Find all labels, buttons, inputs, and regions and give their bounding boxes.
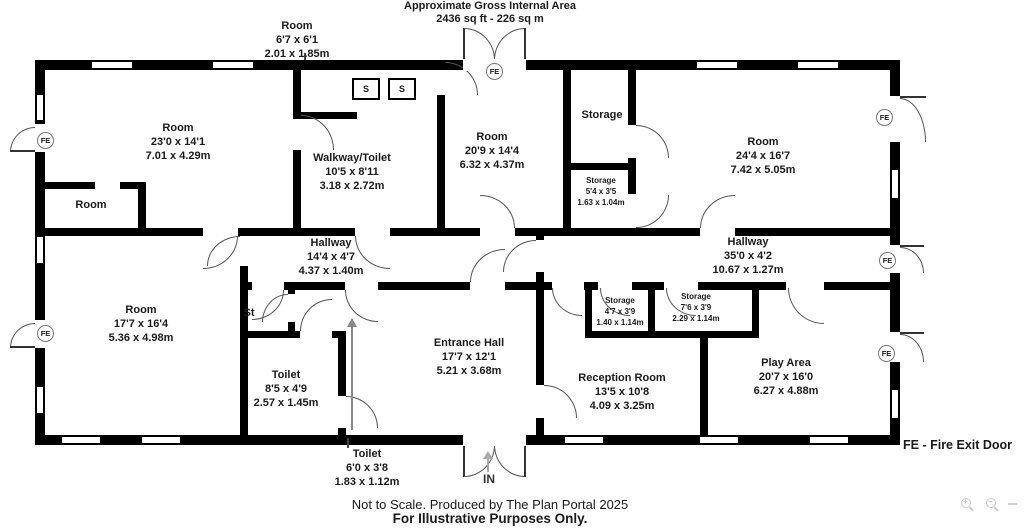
header-title: Approximate Gross Internal Area bbox=[404, 0, 576, 14]
door-swing-arc bbox=[10, 127, 35, 152]
door-leaf bbox=[900, 332, 924, 334]
fire-exit-marker: FE bbox=[876, 109, 893, 126]
room-name: Storage bbox=[672, 292, 719, 303]
window bbox=[798, 60, 838, 70]
room-dims-metric: 4.09 x 3.25m bbox=[578, 400, 665, 414]
room-name: Room bbox=[460, 131, 525, 145]
fe-label: FE bbox=[880, 113, 890, 122]
room-dims-imperial: 20'9 x 14'4 bbox=[460, 145, 525, 159]
sink-label: S bbox=[399, 84, 405, 94]
wall-segment bbox=[544, 282, 552, 290]
room-label-storage-54: Storage 5'4 x 3'5 1.63 x 1.04m bbox=[577, 176, 624, 208]
room-dims-imperial: 20'7 x 16'0 bbox=[754, 371, 819, 385]
door-leaf bbox=[10, 150, 35, 152]
room-dims-metric: 7.42 x 5.05m bbox=[731, 164, 796, 178]
wall-segment bbox=[338, 331, 346, 396]
room-name: Room bbox=[265, 20, 330, 34]
wall-segment bbox=[563, 60, 571, 228]
door-swing-arc bbox=[900, 334, 924, 362]
room-name: Toilet bbox=[335, 448, 400, 462]
room-label-entrance-hall: Entrance Hall 17'7 x 12'1 5.21 x 3.68m bbox=[434, 337, 504, 378]
fe-label: FE bbox=[41, 329, 51, 338]
wall-segment bbox=[585, 331, 759, 338]
room-label-toilet-60: Toilet 6'0 x 3'8 1.83 x 1.12m bbox=[335, 448, 400, 489]
fire-exit-marker: FE bbox=[37, 325, 54, 342]
wall-segment bbox=[536, 418, 544, 435]
fire-exit-marker: FE bbox=[878, 345, 895, 362]
room-name: Room bbox=[146, 122, 211, 136]
room-label-room-20: Room 20'9 x 14'4 6.32 x 4.37m bbox=[460, 131, 525, 172]
room-label-toilet-85: Toilet 8'5 x 4'9 2.57 x 1.45m bbox=[254, 369, 319, 410]
fire-exit-legend: FE - Fire Exit Door bbox=[903, 438, 1012, 452]
room-dims-metric: 6.32 x 4.37m bbox=[460, 159, 525, 173]
zoom-in-icon[interactable]: + bbox=[961, 498, 971, 508]
room-dims-imperial: 13'5 x 10'8 bbox=[578, 386, 665, 400]
room-name: Room bbox=[109, 304, 174, 318]
room-dims-imperial: 14'4 x 4'7 bbox=[299, 251, 364, 265]
window bbox=[62, 435, 100, 445]
room-dims-metric: 7.01 x 4.29m bbox=[146, 150, 211, 164]
fe-label: FE bbox=[883, 256, 893, 265]
wall-segment bbox=[240, 266, 248, 435]
window bbox=[35, 387, 45, 413]
door-swing-arc bbox=[900, 98, 926, 142]
window bbox=[35, 95, 45, 120]
door-leaf bbox=[524, 445, 526, 477]
fire-exit-marker: FE bbox=[879, 252, 896, 269]
room-dims-imperial: 7'6 x 3'9 bbox=[672, 303, 719, 314]
room-label-hallway-35: Hallway 35'0 x 4'2 10.67 x 1.27m bbox=[713, 236, 784, 277]
window bbox=[565, 435, 603, 445]
room-dims-metric: 5.21 x 3.68m bbox=[434, 365, 504, 379]
room-label-st: St bbox=[244, 307, 255, 321]
window bbox=[697, 60, 737, 70]
door-leaf bbox=[10, 346, 35, 348]
door-swing-arc bbox=[480, 195, 515, 228]
floorplan-page: { "header": { "line1": "Approximate Gros… bbox=[0, 0, 1024, 531]
window bbox=[213, 60, 253, 70]
room-label-room-17: Room 17'7 x 16'4 5.36 x 4.98m bbox=[109, 304, 174, 345]
room-name: Storage bbox=[582, 109, 623, 123]
room-dims-imperial: 6'0 x 3'8 bbox=[335, 462, 400, 476]
room-dims-imperial: 23'0 x 14'1 bbox=[146, 136, 211, 150]
room-name: Room bbox=[731, 136, 796, 150]
sink-box: S bbox=[352, 78, 380, 100]
room-dims-metric: 5.36 x 4.98m bbox=[109, 332, 174, 346]
wall-segment bbox=[293, 150, 301, 228]
minus-glyph: − bbox=[987, 498, 994, 505]
wall-segment bbox=[735, 228, 890, 236]
wall-segment bbox=[698, 282, 786, 290]
wall-segment bbox=[824, 282, 890, 290]
room-dims-metric: 10.67 x 1.27m bbox=[713, 264, 784, 278]
wall-segment bbox=[628, 60, 636, 125]
stairs-arrow-head bbox=[347, 318, 357, 327]
room-name: Toilet bbox=[254, 369, 319, 383]
door-swing-arc bbox=[301, 115, 334, 150]
room-dims-metric: 2.01 x 1.85m bbox=[265, 48, 330, 62]
room-label-room-24: Room 24'4 x 16'7 7.42 x 5.05m bbox=[731, 136, 796, 177]
door-swing-arc bbox=[636, 195, 669, 228]
room-label-storage-76: Storage 7'6 x 3'9 2.29 x 1.14m bbox=[672, 292, 719, 324]
room-label-hallway-14: Hallway 14'4 x 4'7 4.37 x 1.40m bbox=[299, 237, 364, 278]
room-dims-imperial: 17'7 x 16'4 bbox=[109, 318, 174, 332]
wall-segment bbox=[700, 331, 708, 435]
door-swing-arc bbox=[636, 125, 669, 158]
room-dims-imperial: 17'7 x 12'1 bbox=[434, 351, 504, 365]
door-swing-arc bbox=[10, 323, 35, 348]
fire-exit-marker: FE bbox=[486, 63, 503, 80]
room-dims-metric: 6.27 x 4.88m bbox=[754, 385, 819, 399]
room-label-storage-top: Storage bbox=[582, 109, 623, 123]
room-label-reception: Reception Room 13'5 x 10'8 4.09 x 3.25m bbox=[578, 372, 665, 413]
entrance-arrow-line bbox=[487, 459, 489, 472]
wall-segment bbox=[390, 228, 480, 236]
wall-segment bbox=[238, 228, 355, 236]
footer-illustrative-note: For Illustrative Purposes Only. bbox=[393, 511, 588, 526]
room-label-storage-47: Storage 4'7 x 3'9 1.40 x 1.14m bbox=[596, 296, 643, 328]
room-dims-imperial: 6'7 x 6'1 bbox=[265, 34, 330, 48]
door-leaf bbox=[900, 96, 926, 98]
room-dims-metric: 2.29 x 1.14m bbox=[672, 314, 719, 325]
fire-exit-marker: FE bbox=[37, 132, 54, 149]
label-leader-line bbox=[347, 438, 349, 448]
room-label-room-23: Room 23'0 x 14'1 7.01 x 4.29m bbox=[146, 122, 211, 163]
room-dims-imperial: 35'0 x 4'2 bbox=[713, 250, 784, 264]
fe-label: FE bbox=[882, 349, 892, 358]
door-swing-arc bbox=[700, 195, 735, 228]
wall-segment bbox=[628, 158, 636, 194]
door-swing-arc bbox=[900, 247, 924, 273]
wall-segment bbox=[288, 282, 295, 294]
door-leaf bbox=[900, 245, 924, 247]
window bbox=[142, 435, 180, 445]
sink-label: S bbox=[363, 84, 369, 94]
room-name: Hallway bbox=[713, 236, 784, 250]
fe-label: FE bbox=[41, 136, 51, 145]
room-dims-metric: 1.63 x 1.04m bbox=[577, 198, 624, 209]
wall-segment bbox=[35, 182, 95, 189]
room-dims-metric: 1.83 x 1.12m bbox=[335, 476, 400, 490]
window bbox=[35, 237, 45, 263]
room-name: Hallway bbox=[299, 237, 364, 251]
wall-segment bbox=[138, 182, 146, 228]
door-swing-arc bbox=[503, 240, 536, 272]
window bbox=[890, 390, 900, 418]
room-name: St bbox=[244, 307, 255, 321]
window bbox=[92, 60, 132, 70]
room-name: Storage bbox=[577, 176, 624, 187]
door-swing-arc bbox=[494, 28, 525, 60]
entrance-in-label: IN bbox=[483, 472, 495, 487]
door-opening bbox=[463, 434, 526, 446]
door-leaf bbox=[524, 28, 526, 60]
footer-disclaimer: Not to Scale. Produced by The Plan Porta… bbox=[352, 497, 629, 512]
door-swing-arc bbox=[788, 288, 824, 324]
wall-segment bbox=[338, 428, 346, 435]
room-label-play-area: Play Area 20'7 x 16'0 6.27 x 4.88m bbox=[754, 357, 819, 398]
entrance-arrow-head bbox=[483, 451, 493, 459]
wall-segment bbox=[437, 95, 445, 228]
stairs-arrow-line bbox=[351, 327, 353, 430]
room-label-top-room: Room 6'7 x 6'1 2.01 x 1.85m bbox=[265, 20, 330, 61]
wall-segment bbox=[585, 282, 592, 338]
door-swing-arc bbox=[300, 299, 332, 331]
door-swing-arc bbox=[544, 385, 577, 418]
room-label-small-room: Room bbox=[75, 199, 106, 213]
wall-segment bbox=[536, 272, 544, 385]
wall-segment bbox=[240, 331, 300, 338]
room-name: Reception Room bbox=[578, 372, 665, 386]
room-name: Entrance Hall bbox=[434, 337, 504, 351]
collapse-controls-icon[interactable] bbox=[1008, 503, 1017, 505]
wall-segment bbox=[505, 282, 536, 290]
room-dims-imperial: 5'4 x 3'5 bbox=[577, 187, 624, 198]
wall-segment bbox=[240, 228, 248, 236]
wall-segment bbox=[563, 163, 636, 170]
room-dims-metric: 3.18 x 2.72m bbox=[313, 180, 391, 194]
window bbox=[810, 435, 848, 445]
header-area-value: 2436 sq ft - 226 sq m bbox=[436, 13, 544, 27]
sink-box: S bbox=[388, 78, 416, 100]
room-name: Walkway/Toilet bbox=[313, 152, 391, 166]
room-dims-metric: 4.37 x 1.40m bbox=[299, 265, 364, 279]
room-name: Storage bbox=[596, 296, 643, 307]
room-dims-metric: 2.57 x 1.45m bbox=[254, 397, 319, 411]
fe-label: FE bbox=[490, 67, 500, 76]
wall-segment bbox=[240, 282, 252, 290]
wall-segment bbox=[378, 282, 470, 290]
room-label-walkway: Walkway/Toilet 10'5 x 8'11 3.18 x 2.72m bbox=[313, 152, 391, 193]
room-dims-imperial: 10'5 x 8'11 bbox=[313, 166, 391, 180]
room-dims-imperial: 4'7 x 3'9 bbox=[596, 307, 643, 318]
door-swing-arc bbox=[470, 249, 505, 282]
room-name: Play Area bbox=[754, 357, 819, 371]
zoom-out-icon[interactable]: − bbox=[986, 498, 996, 508]
window bbox=[890, 170, 900, 198]
wall-segment bbox=[293, 60, 301, 115]
room-name: Room bbox=[75, 199, 106, 213]
room-dims-metric: 1.40 x 1.14m bbox=[596, 318, 643, 329]
wall-segment bbox=[752, 282, 759, 338]
room-dims-imperial: 24'4 x 16'7 bbox=[731, 150, 796, 164]
wall-segment bbox=[648, 282, 655, 338]
wall-segment bbox=[35, 228, 203, 236]
window bbox=[700, 435, 738, 445]
wall-segment bbox=[536, 228, 544, 240]
plus-glyph: + bbox=[962, 498, 969, 505]
room-dims-imperial: 8'5 x 4'9 bbox=[254, 383, 319, 397]
door-swing-arc bbox=[552, 288, 582, 316]
door-swing-arc bbox=[494, 445, 525, 477]
door-swing-arc bbox=[464, 28, 495, 60]
